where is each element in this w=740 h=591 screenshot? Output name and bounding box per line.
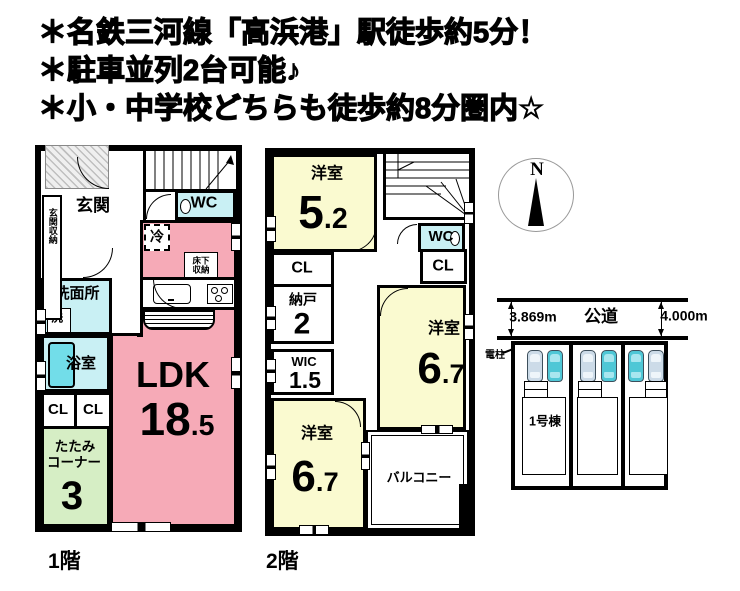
closet-right-label: CL (432, 259, 453, 276)
floor2-plan: 洋室 5.2 WC CL CL 納戸 (265, 148, 475, 536)
frontage-right-label: 4.000m (660, 309, 707, 324)
underfloor-storage-label-2: 収納 (192, 266, 209, 275)
road-label: 公道 (584, 308, 618, 326)
wic-size: 1.5 (289, 368, 321, 392)
lot-divider-1 (569, 345, 573, 486)
bathroom-label: 浴室 (66, 356, 96, 372)
stove-icon (207, 284, 233, 304)
site-plan: 公道 3.869m 4.000m 電柱 1号棟 (480, 290, 740, 505)
house-footprint-1 (522, 397, 566, 475)
car-icon (628, 350, 644, 382)
tatami-label-1: たたみ (55, 440, 96, 454)
wc2f-door-arc (397, 224, 417, 244)
yoshitsu67l-label: 洋室 (301, 427, 333, 444)
compass-needle-icon (528, 178, 544, 226)
storeroom-label: 納戸 (289, 293, 317, 308)
closet-left-label: CL (291, 261, 312, 278)
stairs-treads-2f-icon (386, 154, 469, 217)
house3-porch (645, 381, 667, 398)
ldk-label: LDK (136, 356, 210, 394)
car-icon (580, 350, 596, 382)
compass: N (498, 154, 576, 232)
car-icon (601, 350, 617, 382)
stairs-treads-icon (146, 151, 236, 189)
house-footprint-3 (629, 397, 668, 475)
yoshitsu52-label: 洋室 (311, 167, 343, 184)
stairs-2f (383, 154, 469, 220)
toilet-icon (180, 199, 191, 214)
headline-line-1: ＊名鉄三河線「高浜港」駅徒歩約5分！ (38, 14, 547, 52)
frontage-left-label: 3.869m (509, 310, 556, 325)
compass-north-label: N (530, 160, 544, 180)
washroom-door-arc (83, 248, 113, 278)
closet1-label: CL (48, 402, 68, 418)
wc1f-label: WC (191, 196, 218, 213)
floor1-label: 1階 (48, 545, 81, 575)
yoshitsu67r-label: 洋室 (428, 322, 460, 339)
stairs-1f (143, 151, 236, 192)
ldk-size: 18.5 (140, 395, 215, 443)
yoshitsu67r-size: 6.7 (417, 346, 464, 392)
building-label: 1号棟 (529, 415, 561, 428)
yoshitsu67l-size: 6.7 (291, 454, 338, 500)
house-footprint-2 (577, 397, 618, 475)
tatami-label-2: コーナー (47, 456, 101, 470)
entrance-storage-label: 玄関収納 (47, 208, 56, 244)
house2-porch (578, 381, 602, 398)
headline-line-3: ＊小・中学校どちらも徒歩約8分圏内☆ (38, 90, 544, 128)
headline-line-2: ＊駐車並列2台可能♪ (38, 52, 301, 90)
storeroom-size: 2 (294, 308, 311, 340)
balcony-wall (459, 484, 469, 530)
road-line-bottom (497, 336, 688, 340)
lot-divider-2 (621, 345, 625, 486)
floorplan-flyer: ＊名鉄三河線「高浜港」駅徒歩約5分！ ＊駐車並列2台可能♪ ＊小・中学校どちらも… (0, 0, 740, 591)
floor2-label: 2階 (266, 545, 299, 575)
car-icon (648, 350, 664, 382)
wc2f-label: WC (429, 229, 454, 245)
tatami-size: 3 (61, 475, 83, 517)
fridge-label: 冷 (150, 230, 164, 245)
floor1-plan: 冷 床下 収納 洗面所 洗 浴室 (35, 145, 242, 532)
yoshitsu52-size: 5.2 (298, 188, 347, 236)
balcony-label: バルコニー (385, 471, 454, 485)
closet2-label: CL (83, 402, 103, 418)
car-icon (527, 350, 543, 382)
entrance-label: 玄関 (76, 197, 110, 215)
house1-porch (524, 381, 548, 398)
kitchen-island (143, 310, 215, 330)
car-icon (547, 350, 563, 382)
parking-lots-box: 1号棟 (511, 341, 668, 490)
